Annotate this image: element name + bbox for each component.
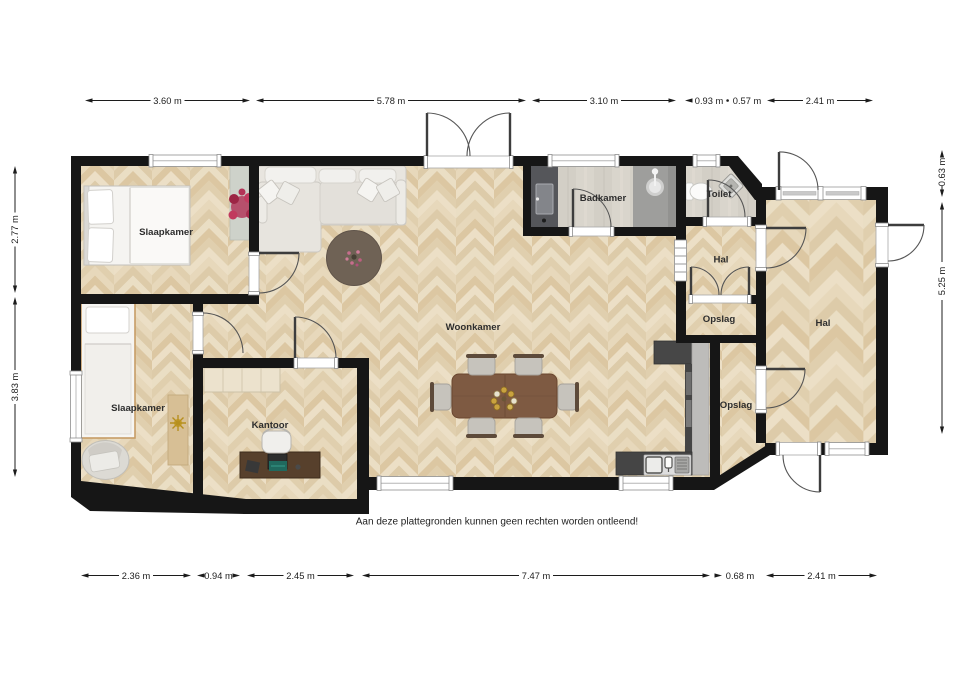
svg-text:2.36 m: 2.36 m bbox=[122, 571, 151, 581]
svg-text:2.41 m: 2.41 m bbox=[807, 571, 836, 581]
svg-text:0.63 m: 0.63 m bbox=[937, 158, 947, 187]
svg-text:Slaapkamer: Slaapkamer bbox=[111, 403, 165, 414]
svg-text:7.47 m: 7.47 m bbox=[522, 571, 551, 581]
svg-text:Kantoor: Kantoor bbox=[252, 420, 289, 431]
svg-text:5.25 m: 5.25 m bbox=[937, 267, 947, 296]
svg-text:Opslag: Opslag bbox=[720, 400, 753, 411]
svg-text:2.45 m: 2.45 m bbox=[286, 571, 315, 581]
svg-text:0.93 m: 0.93 m bbox=[695, 96, 724, 106]
svg-text:3.60 m: 3.60 m bbox=[153, 96, 182, 106]
svg-text:2.41 m: 2.41 m bbox=[806, 96, 835, 106]
svg-text:Hal: Hal bbox=[714, 255, 729, 266]
svg-text:Aan deze plattegronden kunnen: Aan deze plattegronden kunnen geen recht… bbox=[356, 517, 638, 528]
svg-text:Slaapkamer: Slaapkamer bbox=[139, 227, 193, 238]
svg-text:Hal: Hal bbox=[816, 318, 831, 329]
svg-text:Toilet: Toilet bbox=[707, 189, 733, 200]
svg-text:3.83 m: 3.83 m bbox=[10, 373, 20, 402]
svg-text:5.78 m: 5.78 m bbox=[377, 96, 406, 106]
svg-text:Opslag: Opslag bbox=[703, 314, 736, 325]
svg-text:Badkamer: Badkamer bbox=[580, 193, 627, 204]
svg-text:2.77 m: 2.77 m bbox=[10, 215, 20, 244]
svg-text:3.10 m: 3.10 m bbox=[590, 96, 619, 106]
svg-text:Woonkamer: Woonkamer bbox=[446, 322, 501, 333]
svg-text:0.94 m: 0.94 m bbox=[204, 571, 233, 581]
svg-text:0.68 m: 0.68 m bbox=[726, 571, 755, 581]
svg-text:0.57 m: 0.57 m bbox=[733, 96, 762, 106]
